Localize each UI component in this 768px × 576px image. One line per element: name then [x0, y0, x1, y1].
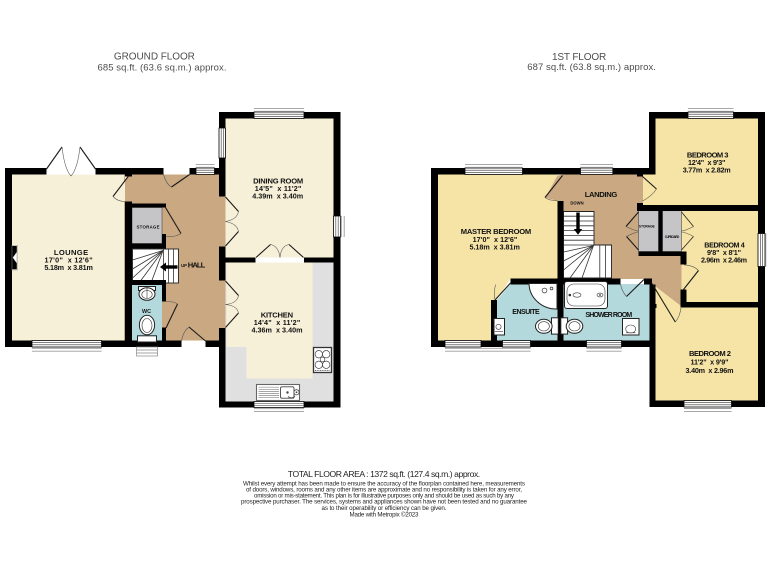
svg-text:STORAGE: STORAGE	[137, 224, 160, 229]
svg-text:Made with Metropix ©2023: Made with Metropix ©2023	[350, 512, 420, 519]
svg-text:UP: UP	[181, 263, 187, 268]
svg-text:3.40m x 2.96m: 3.40m x 2.96m	[686, 366, 734, 375]
svg-text:2.96m x 2.46m: 2.96m x 2.46m	[701, 255, 747, 264]
svg-text:3.77m x 2.82m: 3.77m x 2.82m	[683, 166, 731, 175]
svg-text:4.39m x 3.40m: 4.39m x 3.40m	[252, 192, 303, 201]
svg-text:5.18m x 3.81m: 5.18m x 3.81m	[470, 242, 520, 251]
svg-text:HALL: HALL	[188, 260, 206, 269]
svg-text:5.18m x 3.81m: 5.18m x 3.81m	[44, 263, 93, 272]
svg-text:SHOWER ROOM: SHOWER ROOM	[585, 312, 632, 319]
svg-text:WC: WC	[142, 309, 151, 315]
svg-text:STORAGE: STORAGE	[639, 225, 656, 229]
svg-text:685 sq.ft. (63.6 sq.m.) approx: 685 sq.ft. (63.6 sq.m.) approx.	[98, 62, 227, 73]
svg-text:DOWN: DOWN	[570, 201, 583, 206]
svg-text:CUPBOARD: CUPBOARD	[665, 235, 680, 239]
svg-text:LANDING: LANDING	[585, 190, 618, 199]
svg-text:TOTAL FLOOR AREA : 1372 sq.ft.: TOTAL FLOOR AREA : 1372 sq.ft. (127.4 sq…	[288, 469, 480, 479]
svg-text:687 sq.ft. (63.8 sq.m.) approx: 687 sq.ft. (63.8 sq.m.) approx.	[527, 62, 656, 73]
svg-text:ENSUITE: ENSUITE	[512, 309, 540, 316]
svg-text:GROUND FLOOR: GROUND FLOOR	[114, 52, 195, 63]
svg-text:4.36m x 3.40m: 4.36m x 3.40m	[252, 326, 303, 335]
